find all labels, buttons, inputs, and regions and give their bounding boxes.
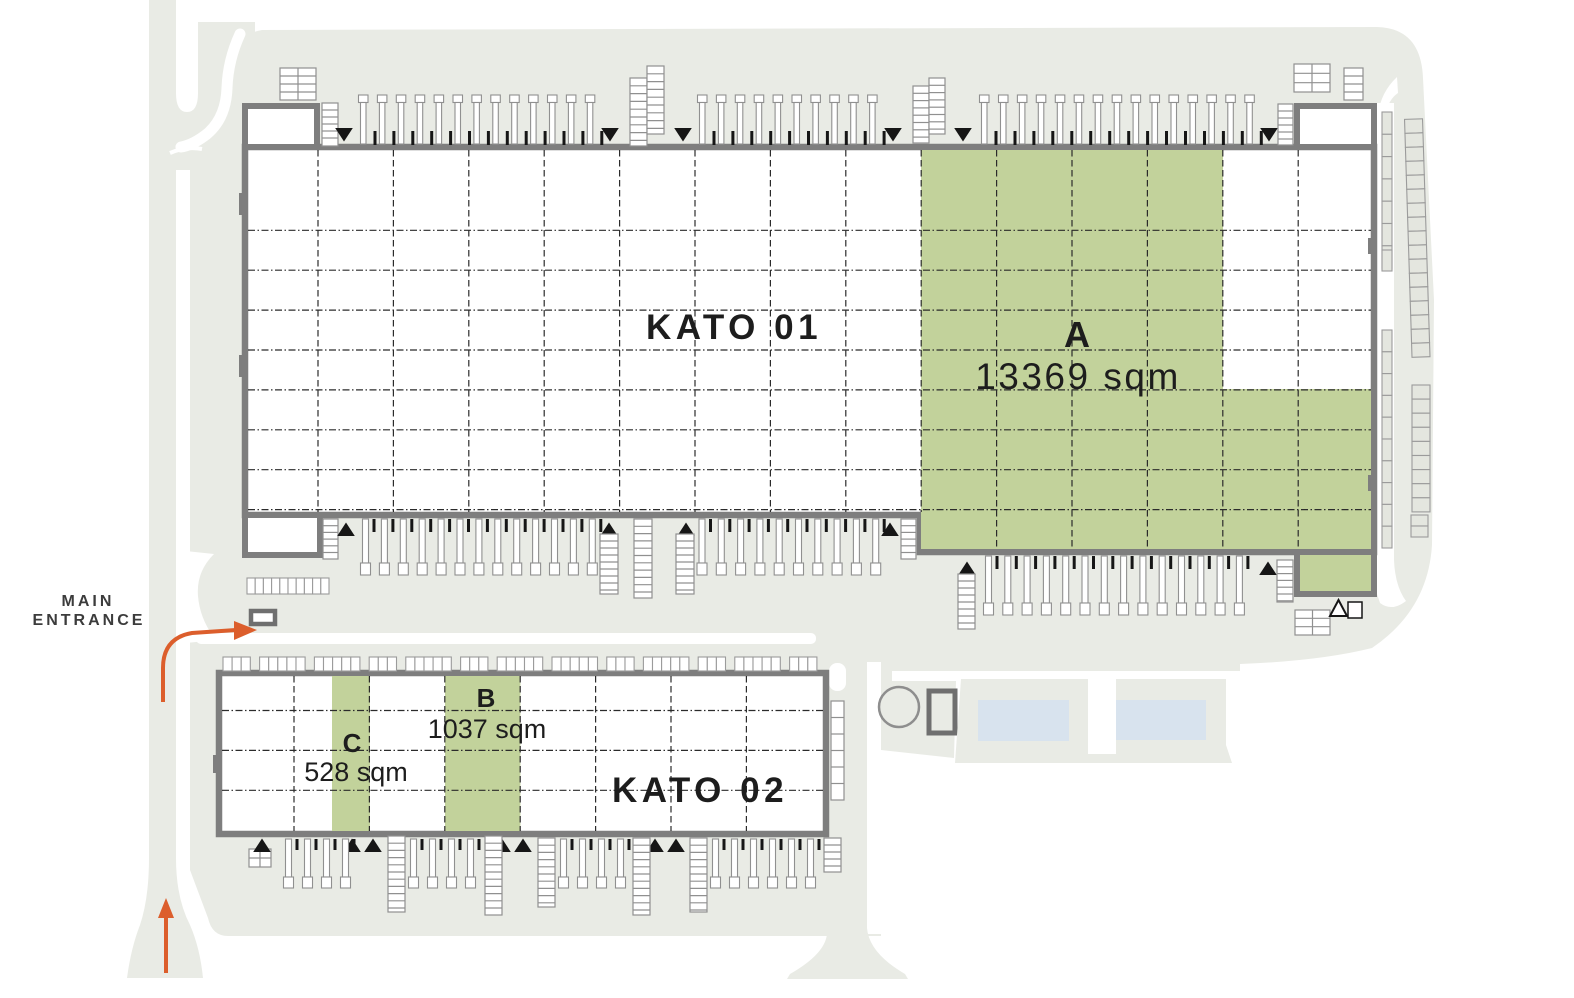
svg-text:13369 sqm: 13369 sqm [975,356,1181,397]
svg-text:ENTRANCE: ENTRANCE [33,612,146,629]
svg-text:A: A [1064,314,1090,355]
svg-text:C: C [343,728,362,758]
svg-text:528 sqm: 528 sqm [304,757,408,787]
svg-text:1037 sqm: 1037 sqm [428,714,547,744]
svg-text:KATO 02: KATO 02 [612,771,788,810]
svg-text:KATO 01: KATO 01 [646,308,822,347]
svg-text:B: B [477,683,496,713]
svg-text:MAIN: MAIN [62,593,115,610]
